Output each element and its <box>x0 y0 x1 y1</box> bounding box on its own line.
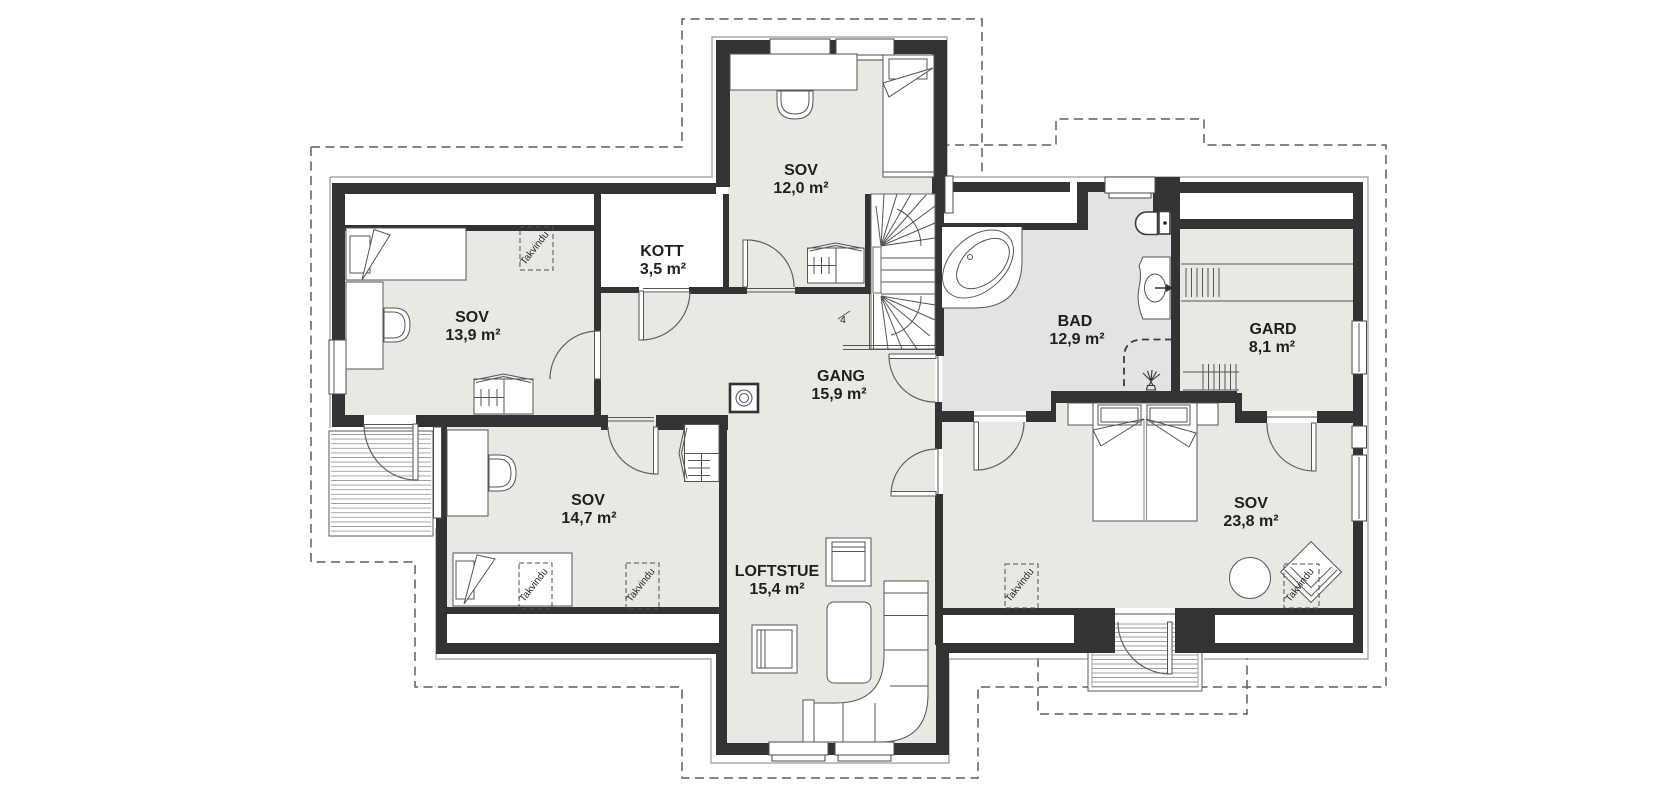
svg-text:BAD: BAD <box>1058 313 1093 330</box>
svg-text:3,5 m²: 3,5 m² <box>640 261 686 278</box>
svg-text:SOV: SOV <box>571 492 605 509</box>
svg-text:KOTT: KOTT <box>640 243 684 260</box>
svg-text:GARD: GARD <box>1249 321 1296 338</box>
svg-text:LOFTSTUE: LOFTSTUE <box>735 563 820 580</box>
svg-text:12,0 m²: 12,0 m² <box>773 180 828 197</box>
svg-text:15,4 m²: 15,4 m² <box>749 581 804 598</box>
svg-text:23,8 m²: 23,8 m² <box>1223 513 1278 530</box>
svg-text:SOV: SOV <box>455 309 489 326</box>
svg-text:SOV: SOV <box>1234 495 1268 512</box>
svg-text:GANG: GANG <box>817 368 865 385</box>
svg-text:SOV: SOV <box>784 162 818 179</box>
svg-text:15,9 m²: 15,9 m² <box>811 386 866 403</box>
svg-text:14,7 m²: 14,7 m² <box>561 510 616 527</box>
svg-text:8,1 m²: 8,1 m² <box>1249 339 1295 356</box>
svg-text:12,9 m²: 12,9 m² <box>1049 331 1104 348</box>
svg-text:13,9 m²: 13,9 m² <box>445 327 500 344</box>
